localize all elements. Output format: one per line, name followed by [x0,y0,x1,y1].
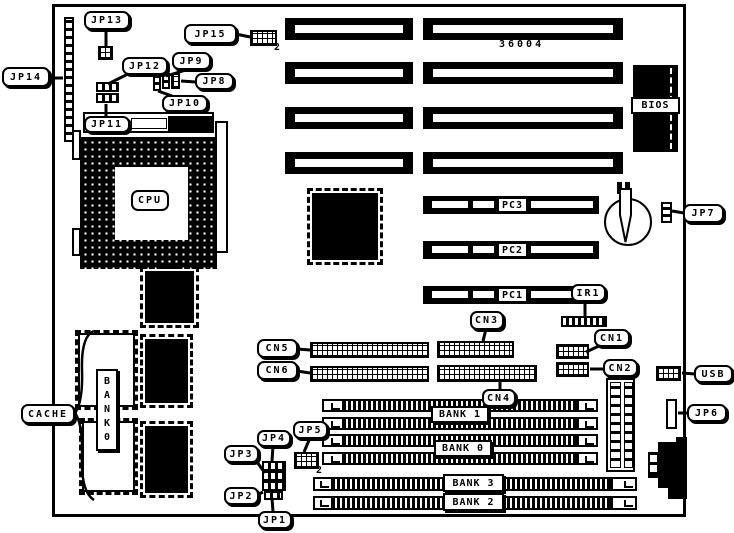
jp15-label: JP15 [184,24,237,44]
jp9-label: JP9 [172,52,211,70]
bios-label: BIOS [631,97,680,114]
board-number: 36004 [499,39,544,50]
usb-label: USB [694,365,733,383]
jp12-label: JP12 [122,57,168,75]
jp3-label: JP3 [224,445,259,463]
bank2-label: BANK 2 [443,493,504,511]
jp15-pin2: 2 [274,42,280,53]
cache-bank0-label: B A N K 0 [96,369,118,451]
jp6-label: JP6 [687,404,727,422]
cn6-label: CN6 [257,361,298,380]
jp4-label: JP4 [257,430,291,447]
pci3-label: PC3 [497,197,528,213]
jp5-pin2: 2 [316,465,322,476]
pci1-label: PC1 [497,287,528,303]
jp10-label: JP10 [162,95,208,112]
battery [605,182,651,245]
jp2-label: JP2 [224,487,259,505]
bank3-label: BANK 3 [443,474,504,492]
cache-label: CACHE [21,404,75,424]
jp11-label: JP11 [84,116,130,133]
cn2-label: CN2 [603,359,638,377]
jp8-label: JP8 [195,73,234,90]
cn3-label: CN3 [470,311,504,330]
jp14-label: JP14 [2,67,50,87]
bank1-label: BANK 1 [431,406,489,423]
cache-brace [75,331,94,500]
cn4-label: CN4 [482,389,516,407]
pci2-label: PC2 [497,242,528,258]
ir1-label: IR1 [571,284,606,302]
bank0-label: BANK 0 [434,440,492,457]
jp1-label: JP1 [258,511,292,529]
cn5-label: CN5 [257,339,298,358]
jp13-label: JP13 [84,11,130,30]
jp7-label: JP7 [683,204,724,223]
cn1-label: CN1 [594,329,630,347]
leader-lines [0,0,734,533]
motherboard-diagram: 36004 BIOS 2 CPU PC3 PC2 [0,0,734,533]
jp5-label: JP5 [293,421,328,439]
cpu-label: CPU [131,190,169,211]
